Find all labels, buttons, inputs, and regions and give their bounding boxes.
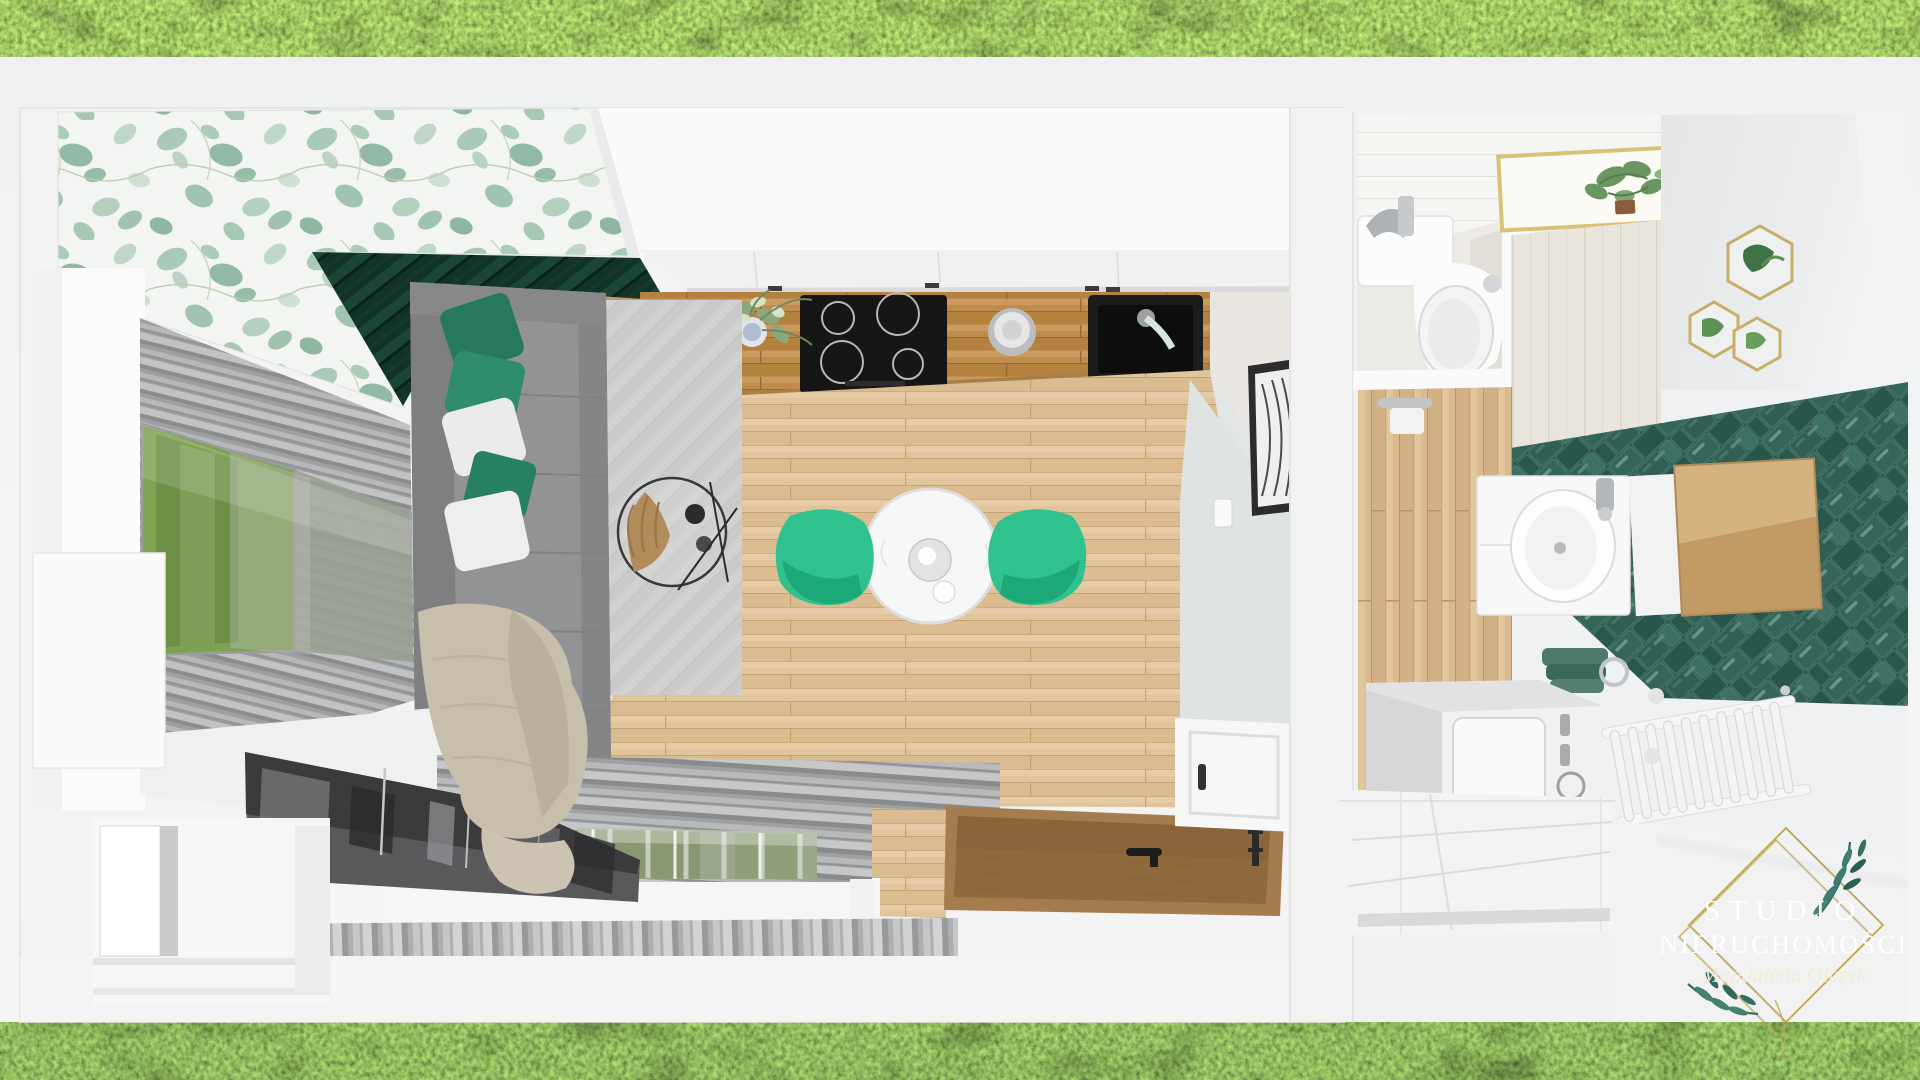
svg-text:STUDIO: STUDIO bbox=[1704, 895, 1864, 927]
svg-text:NIERUCHOMOŚCI: NIERUCHOMOŚCI bbox=[1659, 930, 1908, 959]
svg-text:Magdalena Olczyk: Magdalena Olczyk bbox=[1700, 962, 1868, 987]
